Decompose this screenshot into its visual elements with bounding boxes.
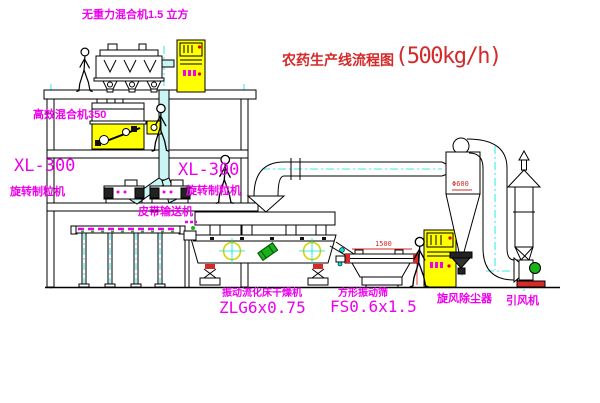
label-cyclone: 旋风除尘器: [437, 293, 492, 305]
control-cabinet-top: [177, 40, 205, 92]
label-belt-conveyor: 皮带输送机: [138, 206, 193, 218]
vibrating-screen: [336, 249, 418, 287]
label-sieve-model: FS0.6x1.5: [330, 298, 417, 316]
cyclone-separator: [446, 138, 480, 274]
spring-support-left: [200, 264, 220, 285]
process-flow-diagram: 农药生产线流程图 (500kg/h) 无重力混合机1.5 立方 高效混合机350…: [0, 0, 600, 403]
label-gravity-free-mixer: 无重力混合机1.5 立方: [82, 9, 188, 21]
high-efficiency-mixer: [90, 99, 161, 149]
label-fan: 引风机: [506, 295, 539, 307]
label-high-efficiency-mixer: 高效混合机350: [33, 109, 106, 121]
label-granulator-model-center: XL-300: [178, 161, 239, 180]
title-capacity: (500kg/h): [395, 44, 501, 69]
label-dryer-model: ZLG6x0.75: [219, 299, 306, 317]
title-text: 农药生产线流程图: [282, 44, 394, 70]
gravity-free-mixer: [94, 44, 174, 92]
dim-sieve-length: 1500: [375, 241, 392, 249]
induced-draft-fan: [508, 151, 545, 287]
belt-conveyor: [71, 226, 185, 287]
conveyor-legs: [79, 233, 165, 287]
label-granulator-name-center: 旋转制粒机: [186, 185, 241, 197]
spring-support-right: [308, 264, 328, 285]
label-granulator-name-left: 旋转制粒机: [10, 186, 65, 198]
dryer-exhaust-duct: [248, 158, 458, 212]
fluid-bed-dryer: [184, 212, 336, 287]
diagram-title: 农药生产线流程图 (500kg/h): [282, 44, 501, 70]
dim-cyclone-diameter: Φ600: [452, 181, 469, 189]
label-granulator-model-left: XL-300: [14, 157, 75, 176]
person-top-floor: [76, 48, 92, 91]
